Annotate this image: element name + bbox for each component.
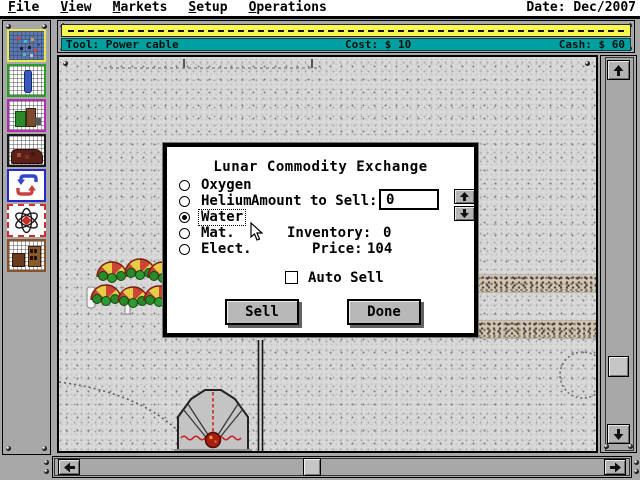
tube-build-tool-icon[interactable] (7, 64, 46, 97)
arrow-down-icon (459, 209, 470, 218)
screw-icon (628, 444, 633, 449)
menu-file[interactable]: File (8, 0, 39, 16)
menu-view[interactable]: View (60, 0, 91, 16)
screw-icon (634, 469, 639, 474)
factory-windows (30, 249, 33, 253)
vertical-scroll-thumb[interactable] (608, 356, 629, 377)
spinner-down-button[interactable] (454, 206, 475, 221)
commodity-label: Mat. (199, 226, 237, 241)
menu-setup[interactable]: Setup (188, 0, 227, 16)
vertical-scroll-track[interactable] (605, 57, 634, 451)
arrow-right-icon (610, 462, 621, 473)
vertical-scrollbar[interactable] (600, 55, 637, 453)
commodity-row[interactable]: Water (179, 210, 245, 225)
price-label: Price: (312, 242, 363, 257)
commodity-label: Oxygen (199, 178, 254, 193)
reactor-tool-icon[interactable] (7, 204, 46, 237)
radio-mat[interactable] (179, 228, 190, 239)
launch-pad (174, 387, 252, 451)
tube-shape (24, 70, 32, 93)
message-bar (61, 24, 631, 37)
arrow-down-icon (613, 429, 624, 440)
auto-sell-checkbox[interactable] (285, 271, 298, 284)
radio-helium[interactable] (179, 196, 190, 207)
tool-sidebar (2, 20, 51, 455)
menu-bar: File View Markets Setup Operations Date:… (0, 0, 640, 19)
screw-icon (634, 460, 639, 465)
scrollbar-endcap (633, 456, 640, 478)
horizontal-scrollbar[interactable] (52, 456, 632, 478)
cash-label: Cash: $ 60 (559, 39, 625, 50)
sell-button[interactable]: Sell (225, 299, 299, 325)
screw-icon (44, 460, 49, 465)
scroll-up-button[interactable] (607, 60, 630, 80)
screw-icon (604, 444, 609, 449)
auto-sell-label: Auto Sell (308, 271, 384, 286)
commodity-row[interactable]: Mat. (179, 226, 237, 241)
screw-icon (44, 469, 49, 474)
recycle-tool-icon[interactable] (7, 169, 46, 202)
menu-markets[interactable]: Markets (113, 0, 168, 16)
map-pixels (17, 37, 20, 40)
inventory-value: 0 (383, 226, 391, 241)
habitat-shape (15, 111, 26, 127)
inventory-label: Inventory: (287, 226, 371, 241)
radio-elect[interactable] (179, 244, 190, 255)
mine-detail (17, 153, 21, 157)
recycle-arrows-glyph (13, 173, 40, 198)
horizontal-scroll-thumb[interactable] (303, 458, 321, 476)
commodity-row[interactable]: Oxygen (179, 178, 254, 193)
scroll-down-button[interactable] (607, 424, 630, 444)
commodity-label: Elect. (199, 242, 254, 257)
scroll-left-button[interactable] (58, 459, 80, 475)
rubble-ridge (467, 320, 596, 339)
price-value: 104 (367, 242, 392, 257)
habitat-shape (35, 118, 41, 125)
commodity-row[interactable]: Helium (179, 194, 254, 209)
radio-oxygen[interactable] (179, 180, 190, 191)
current-tool-label: Tool: Power cable (66, 39, 179, 50)
factory-build-tool-icon[interactable] (7, 239, 46, 272)
habitat-build-tool-icon[interactable] (7, 99, 46, 132)
commodity-row[interactable]: Elect. (179, 242, 254, 257)
menu-operations[interactable]: Operations (249, 0, 327, 16)
scroll-right-button[interactable] (604, 459, 626, 475)
horizontal-scroll-track[interactable] (54, 458, 630, 476)
arrow-up-icon (613, 65, 624, 76)
mine-build-tool-icon[interactable] (7, 134, 46, 167)
screw-icon (42, 446, 47, 451)
dashed-line (68, 30, 624, 32)
status-bar: Tool: Power cable Cost: $ 10 Cash: $ 60 (61, 38, 631, 51)
radio-water[interactable] (179, 212, 190, 223)
amount-input[interactable] (379, 189, 439, 210)
commodity-exchange-dialog: Lunar Commodity Exchange Oxygen Helium W… (163, 143, 478, 337)
rubble-ridge (474, 274, 596, 293)
cost-label: Cost: $ 10 (345, 39, 411, 50)
mine-shape (11, 149, 43, 164)
arrow-left-icon (64, 462, 75, 473)
colony-map-tool-icon[interactable] (7, 29, 46, 62)
mouse-cursor-icon (250, 222, 263, 241)
spinner-up-button[interactable] (454, 189, 475, 204)
commodity-label: Helium (199, 194, 254, 209)
arrow-up-icon (459, 192, 470, 201)
commodity-label: Water (199, 210, 245, 225)
game-screen: { "menu_bar": { "items": [ {"label": "Fi… (0, 0, 640, 480)
dialog-title: Lunar Commodity Exchange (167, 159, 474, 175)
amount-label: Amount to Sell: (251, 194, 377, 209)
screw-icon (6, 446, 11, 451)
atom-glyph (12, 207, 41, 234)
factory-shape (12, 253, 25, 267)
tool-status-panel: Tool: Power cable Cost: $ 10 Cash: $ 60 (57, 20, 635, 53)
done-button[interactable]: Done (347, 299, 421, 325)
date-display: Date: Dec/2007 (526, 0, 636, 16)
amount-spinner (454, 189, 475, 223)
